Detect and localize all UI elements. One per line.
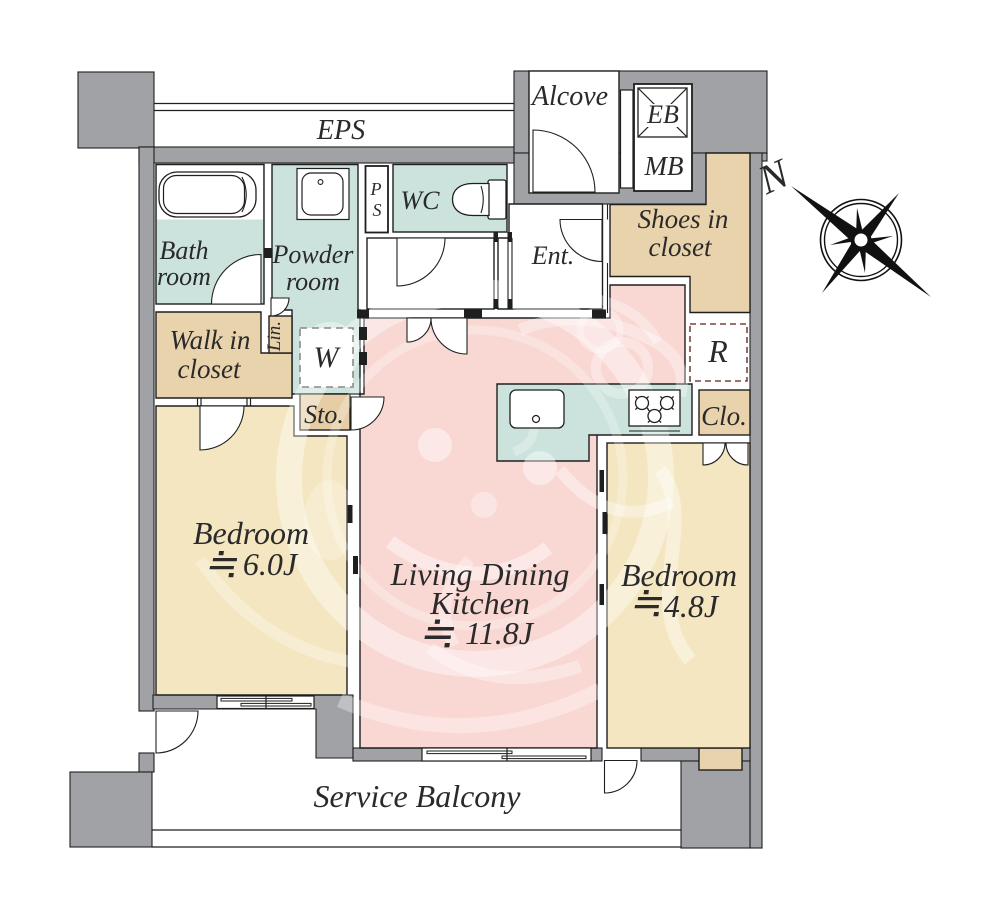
svg-text:P: P [370, 179, 382, 199]
svg-text:S: S [373, 200, 382, 220]
svg-text:Alcove: Alcove [530, 81, 608, 112]
svg-text:Service Balcony: Service Balcony [314, 778, 522, 814]
svg-text:Sto.: Sto. [304, 400, 344, 429]
svg-text:Walk in: Walk in [170, 325, 251, 355]
svg-text:Clo.: Clo. [701, 401, 747, 431]
svg-text:room: room [157, 262, 211, 291]
svg-text:Lin.: Lin. [264, 321, 285, 352]
svg-text:EB: EB [646, 100, 679, 129]
svg-text:4.8J: 4.8J [664, 588, 720, 624]
svg-text:Shoes in: Shoes in [638, 204, 729, 234]
svg-text:EPS: EPS [316, 115, 365, 146]
svg-text:W: W [314, 341, 342, 374]
svg-text:Bath: Bath [159, 236, 208, 265]
svg-text:Powder: Powder [272, 240, 355, 269]
svg-text:Ent.: Ent. [531, 241, 575, 270]
svg-text:WC: WC [401, 186, 441, 215]
svg-text:closet: closet [178, 354, 242, 384]
svg-text:11.8J: 11.8J [465, 615, 535, 651]
svg-text:R: R [707, 333, 728, 369]
svg-text:MB: MB [644, 151, 684, 181]
svg-text:closet: closet [649, 232, 713, 262]
svg-text:6.0J: 6.0J [243, 546, 299, 582]
svg-text:room: room [286, 267, 340, 296]
